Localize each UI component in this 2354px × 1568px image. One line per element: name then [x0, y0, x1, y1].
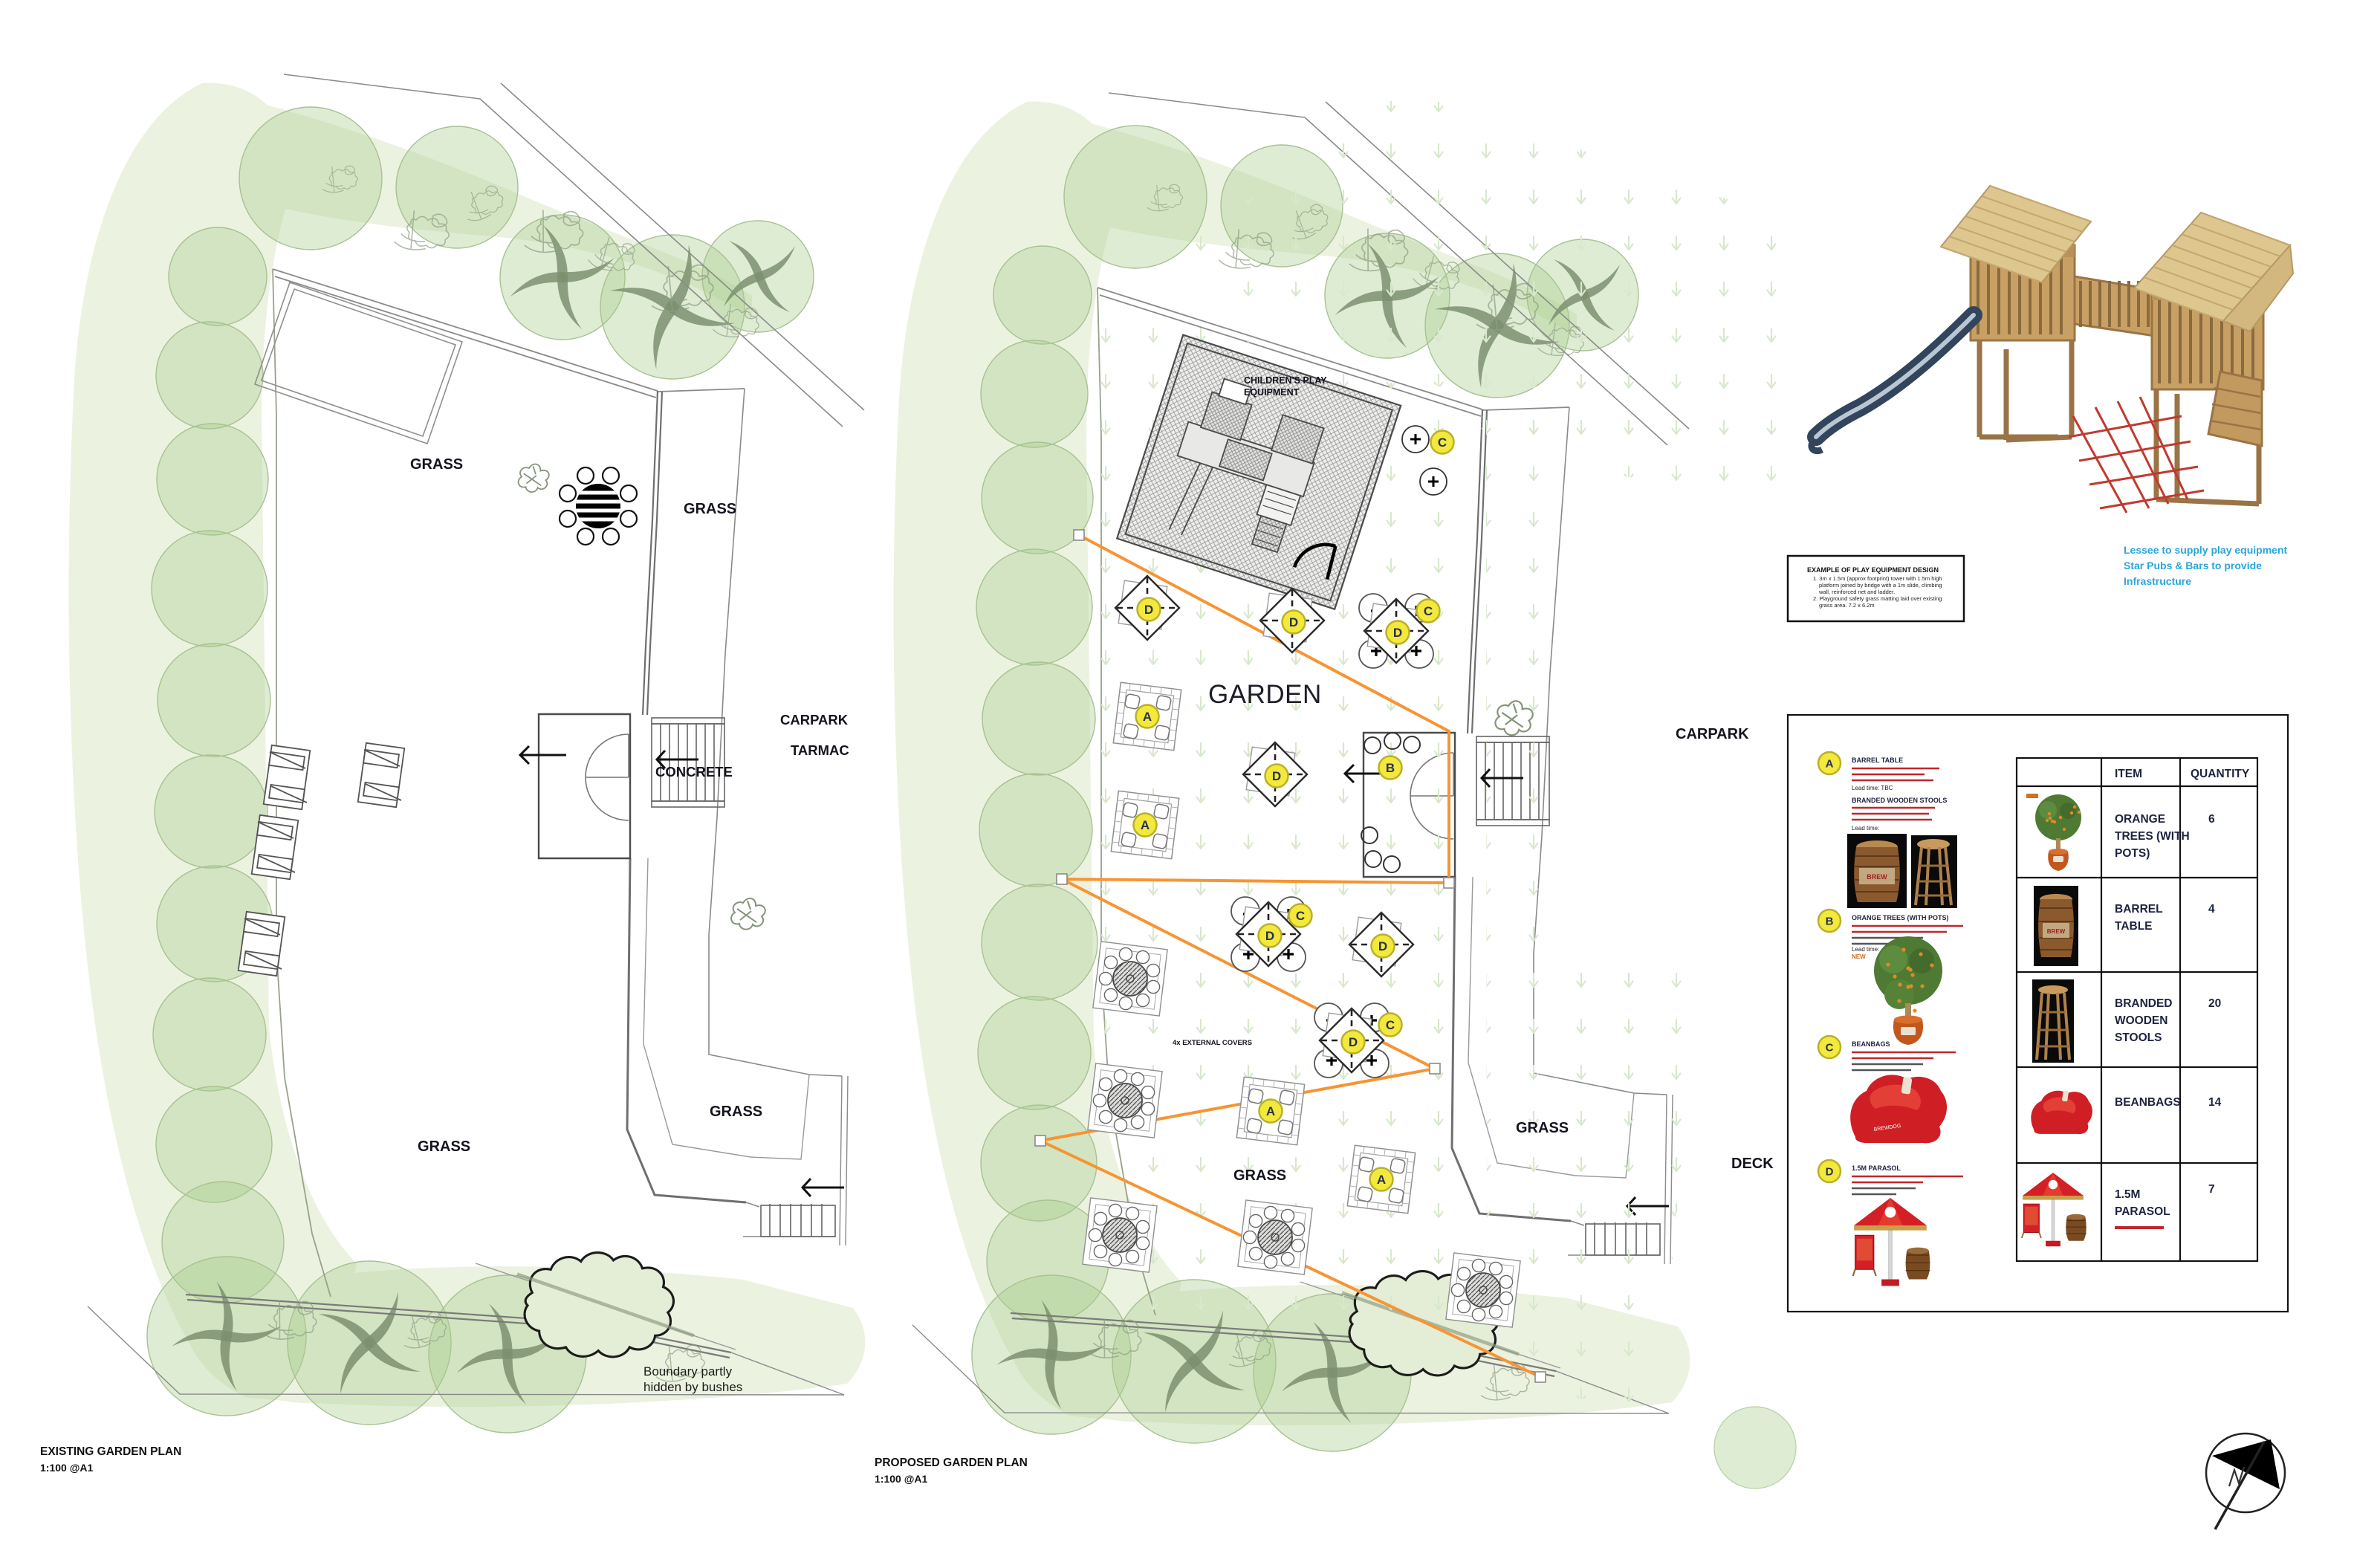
svg-text:CARPARK: CARPARK [1676, 726, 1749, 742]
svg-text:B: B [1386, 761, 1395, 775]
svg-text:POTS): POTS) [2115, 847, 2150, 860]
svg-text:1:100 @A1: 1:100 @A1 [875, 1473, 927, 1485]
svg-text:C: C [1386, 1018, 1395, 1032]
svg-text:BEANBAGS: BEANBAGS [1852, 1040, 1890, 1048]
svg-text:TREES (WITH: TREES (WITH [2115, 830, 2190, 843]
svg-text:EXISTING GARDEN PLAN: EXISTING GARDEN PLAN [40, 1445, 181, 1458]
svg-text:ORANGE TREES (WITH POTS): ORANGE TREES (WITH POTS) [1852, 914, 1949, 921]
svg-text:BRANDED WOODEN STOOLS: BRANDED WOODEN STOOLS [1852, 797, 1947, 804]
svg-text:C: C [1826, 1042, 1834, 1054]
svg-text:D: D [1265, 929, 1274, 943]
svg-text:EQUIPMENT: EQUIPMENT [1244, 387, 1300, 398]
svg-text:wall, reinforced net and ladde: wall, reinforced net and ladder. [1818, 589, 1895, 595]
svg-text:A: A [1141, 818, 1150, 832]
svg-text:A: A [1377, 1173, 1386, 1187]
svg-text:2. Playground safety grass ma: 2. Playground safety grass matting laid … [1813, 595, 1942, 602]
svg-text:CONCRETE: CONCRETE [655, 764, 733, 780]
svg-text:A: A [1266, 1104, 1275, 1118]
svg-text:GRASS: GRASS [1233, 1167, 1286, 1184]
svg-text:D: D [1272, 769, 1281, 783]
svg-text:grass area. 7.2 x 6.2m: grass area. 7.2 x 6.2m [1819, 602, 1875, 609]
svg-text:Infrastructure: Infrastructure [2124, 575, 2191, 587]
svg-text:6: 6 [2208, 813, 2215, 826]
svg-text:GRASS: GRASS [684, 501, 736, 517]
svg-text:BEANBAGS: BEANBAGS [2115, 1096, 2181, 1109]
svg-text:GARDEN: GARDEN [1208, 680, 1322, 709]
svg-text:Star Pubs & Bars to provide: Star Pubs & Bars to provide [2124, 560, 2262, 571]
svg-text:BREW: BREW [1867, 873, 1887, 881]
svg-text:C: C [1296, 909, 1305, 923]
svg-text:Lead time:: Lead time: [1852, 946, 1879, 953]
svg-text:4x EXTERNAL COVERS: 4x EXTERNAL COVERS [1173, 1039, 1252, 1047]
svg-text:PARASOL: PARASOL [2115, 1205, 2170, 1218]
svg-text:DECK: DECK [1731, 1156, 1774, 1172]
svg-text:Boundary partly: Boundary partly [643, 1364, 733, 1379]
svg-text:ORANGE: ORANGE [2115, 813, 2165, 826]
svg-text:20: 20 [2208, 997, 2221, 1010]
svg-text:EXAMPLE OF PLAY EQUIPMENT DESI: EXAMPLE OF PLAY EQUIPMENT DESIGN [1807, 566, 1939, 574]
svg-text:STOOLS: STOOLS [2115, 1031, 2162, 1044]
svg-text:D: D [1378, 939, 1387, 953]
svg-text:7: 7 [2208, 1183, 2215, 1196]
svg-text:CHILDREN'S PLAY: CHILDREN'S PLAY [1244, 375, 1327, 386]
svg-text:4: 4 [2208, 903, 2215, 916]
svg-text:A: A [1143, 710, 1152, 724]
svg-text:C: C [1438, 435, 1447, 450]
svg-text:Lead time:: Lead time: [1852, 825, 1879, 832]
svg-text:BRANDED: BRANDED [2115, 997, 2173, 1010]
svg-text:BARREL: BARREL [2115, 903, 2163, 916]
svg-text:1. 3m x 1.5m (approx footprin: 1. 3m x 1.5m (approx footprint) tower wi… [1813, 575, 1942, 582]
svg-text:hidden by bushes: hidden by bushes [643, 1380, 742, 1394]
svg-text:Lessee to supply play equipmen: Lessee to supply play equipment [2124, 544, 2288, 556]
svg-text:GRASS: GRASS [410, 456, 463, 473]
svg-text:B: B [1826, 916, 1834, 928]
svg-text:CARPARK: CARPARK [780, 712, 849, 728]
svg-text:GRASS: GRASS [418, 1138, 470, 1155]
svg-text:TABLE: TABLE [2115, 920, 2153, 933]
svg-text:BREW: BREW [2047, 928, 2066, 935]
svg-text:TARMAC: TARMAC [791, 742, 849, 758]
svg-text:D: D [1393, 626, 1402, 640]
svg-text:WOODEN: WOODEN [2115, 1014, 2167, 1027]
svg-text:PROPOSED GARDEN PLAN: PROPOSED GARDEN PLAN [875, 1457, 1028, 1469]
svg-text:1:100 @A1: 1:100 @A1 [40, 1462, 93, 1474]
svg-text:ITEM: ITEM [2115, 768, 2142, 780]
svg-text:D: D [1289, 615, 1298, 629]
svg-text:D: D [1349, 1035, 1358, 1049]
svg-text:A: A [1826, 758, 1834, 771]
svg-text:NEW: NEW [1852, 953, 1866, 960]
svg-text:D: D [1826, 1166, 1834, 1179]
svg-text:BARREL TABLE: BARREL TABLE [1852, 757, 1903, 764]
svg-text:14: 14 [2208, 1096, 2222, 1109]
svg-text:QUANTITY: QUANTITY [2191, 768, 2250, 780]
svg-text:1.5M PARASOL: 1.5M PARASOL [1852, 1164, 1901, 1172]
svg-text:GRASS: GRASS [710, 1104, 762, 1120]
svg-text:Lead time: TBC: Lead time: TBC [1852, 785, 1893, 791]
svg-text:GRASS: GRASS [1516, 1120, 1569, 1136]
svg-text:1.5M: 1.5M [2115, 1188, 2140, 1201]
svg-text:platform joined by bridge with: platform joined by bridge with a 1m slid… [1819, 582, 1942, 589]
svg-text:D: D [1144, 603, 1153, 617]
svg-text:C: C [1424, 604, 1433, 618]
